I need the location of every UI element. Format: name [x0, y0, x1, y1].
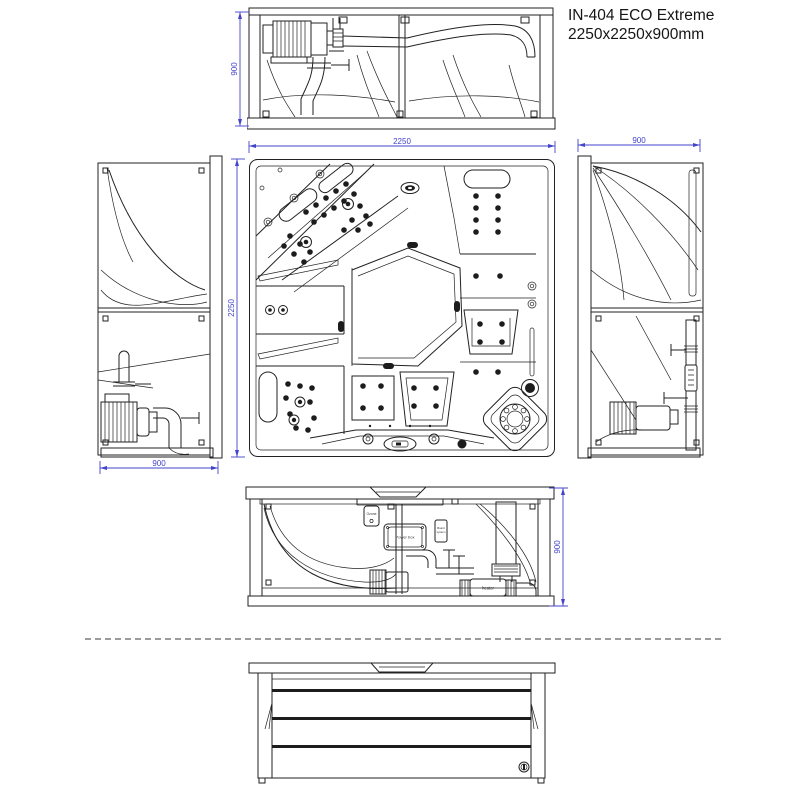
svg-text:900: 900 — [632, 136, 646, 145]
model-dimensions: 2250x2250x900mm — [568, 25, 714, 44]
heater-label: heater — [482, 586, 494, 591]
frame — [578, 156, 703, 458]
cabinet-body — [258, 673, 545, 783]
power-box: Power box — [384, 524, 426, 550]
model-name: IN-404 ECO Extreme — [568, 6, 714, 25]
svg-text:2250: 2250 — [393, 137, 411, 146]
shell-profile — [263, 51, 539, 117]
lounger-corner — [256, 161, 408, 292]
svg-text:900: 900 — [230, 62, 239, 76]
handle-recess — [371, 663, 433, 672]
pump — [596, 392, 688, 442]
heater: heater — [460, 579, 536, 596]
left-bench — [256, 260, 352, 366]
plumbing — [98, 351, 210, 388]
pump — [101, 394, 199, 454]
air-control — [401, 183, 419, 194]
plumbing — [301, 18, 535, 115]
left-elevation-view — [93, 150, 225, 464]
svg-text:2250: 2250 — [227, 299, 236, 317]
board-label-2: system — [437, 530, 447, 534]
floor — [338, 242, 462, 369]
lock-icon — [519, 762, 529, 772]
power-box-label: Power box — [396, 535, 415, 540]
lid — [246, 487, 554, 504]
rear-elevation-view — [247, 5, 557, 133]
dimension-plan-depth: 2250 — [227, 159, 245, 457]
fold-separator-line — [85, 638, 721, 640]
frame — [98, 156, 222, 458]
right-elevation-view — [576, 150, 708, 464]
lounger-jets — [281, 181, 373, 265]
filter-lid — [480, 384, 551, 455]
shell-profile — [101, 168, 207, 305]
drawing-title: IN-404 ECO Extreme 2250x2250x900mm — [568, 6, 714, 44]
bottom-left-seat — [256, 366, 344, 434]
plan-view — [248, 158, 556, 458]
ozone-box: Ozone — [364, 506, 379, 526]
bottom-center-seats — [352, 372, 454, 426]
control-panel-band — [310, 425, 494, 451]
dimension-plan-width: 2250 — [249, 137, 555, 153]
lid — [249, 663, 555, 673]
board-box: Board system — [435, 520, 447, 542]
pump — [263, 21, 343, 63]
cabinet-view — [247, 657, 557, 793]
shell-profile — [591, 166, 701, 303]
plumbing — [406, 502, 520, 582]
ozone-label: Ozone — [367, 512, 377, 516]
front-elevation-view: Ozone Power box Board system — [244, 484, 558, 612]
right-seats — [444, 166, 539, 397]
